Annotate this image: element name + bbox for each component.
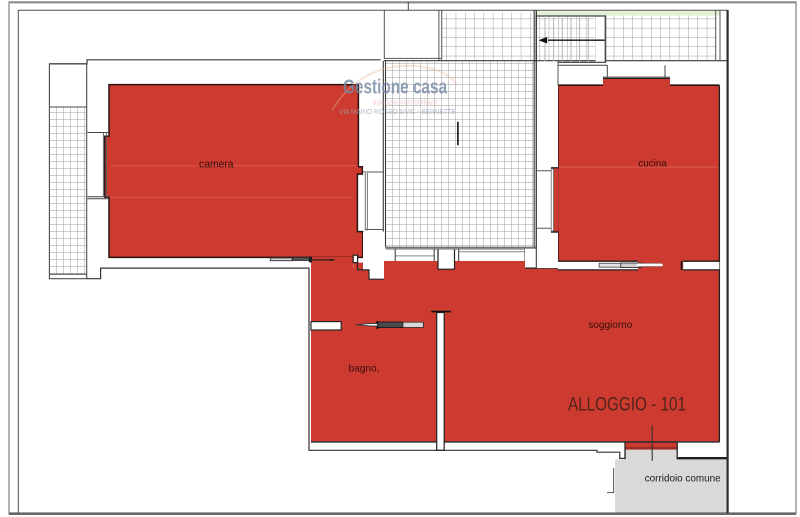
svg-text:camera: camera bbox=[199, 159, 234, 171]
svg-text:cucina: cucina bbox=[638, 157, 667, 169]
svg-text:bagno,: bagno, bbox=[349, 363, 380, 375]
svg-text:ALLOGGIO - 101: ALLOGGIO - 101 bbox=[568, 395, 686, 416]
svg-text:corridoio comune: corridoio comune bbox=[645, 474, 721, 485]
svg-text:agenzia immobiliare: agenzia immobiliare bbox=[373, 100, 438, 107]
svg-text:Gestione casa: Gestione casa bbox=[343, 77, 448, 99]
svg-text:VIA MARIO ROSSO 5/V/C - BERNET: VIA MARIO ROSSO 5/V/C - BERNETTE bbox=[339, 109, 456, 116]
svg-text:soggiorno: soggiorno bbox=[588, 319, 632, 331]
